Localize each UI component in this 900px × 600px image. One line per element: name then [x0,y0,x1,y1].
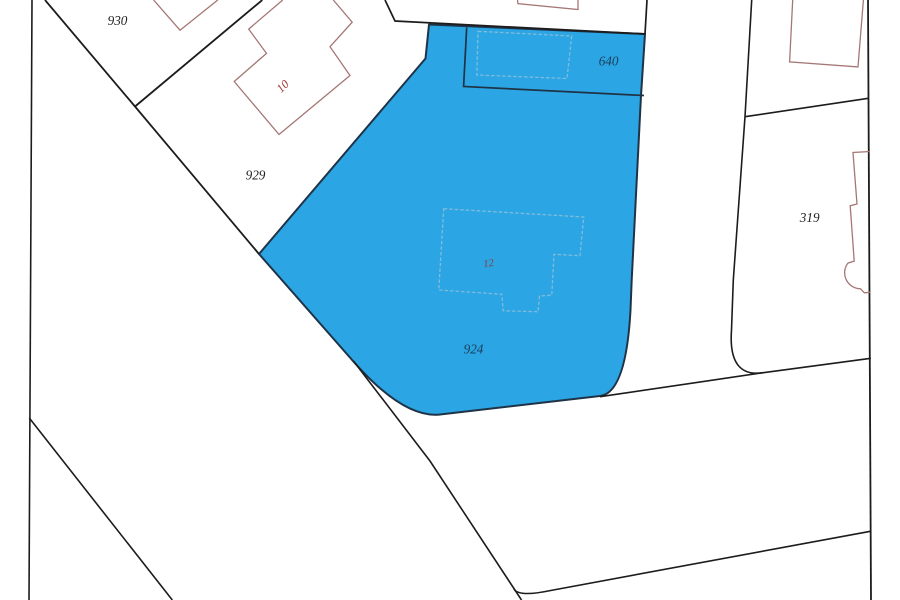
svg-text:10: 10 [273,77,291,95]
svg-text:929: 929 [246,167,266,182]
svg-text:640: 640 [599,54,619,69]
svg-text:319: 319 [799,210,820,225]
svg-text:930: 930 [108,13,128,28]
svg-text:924: 924 [464,341,484,356]
